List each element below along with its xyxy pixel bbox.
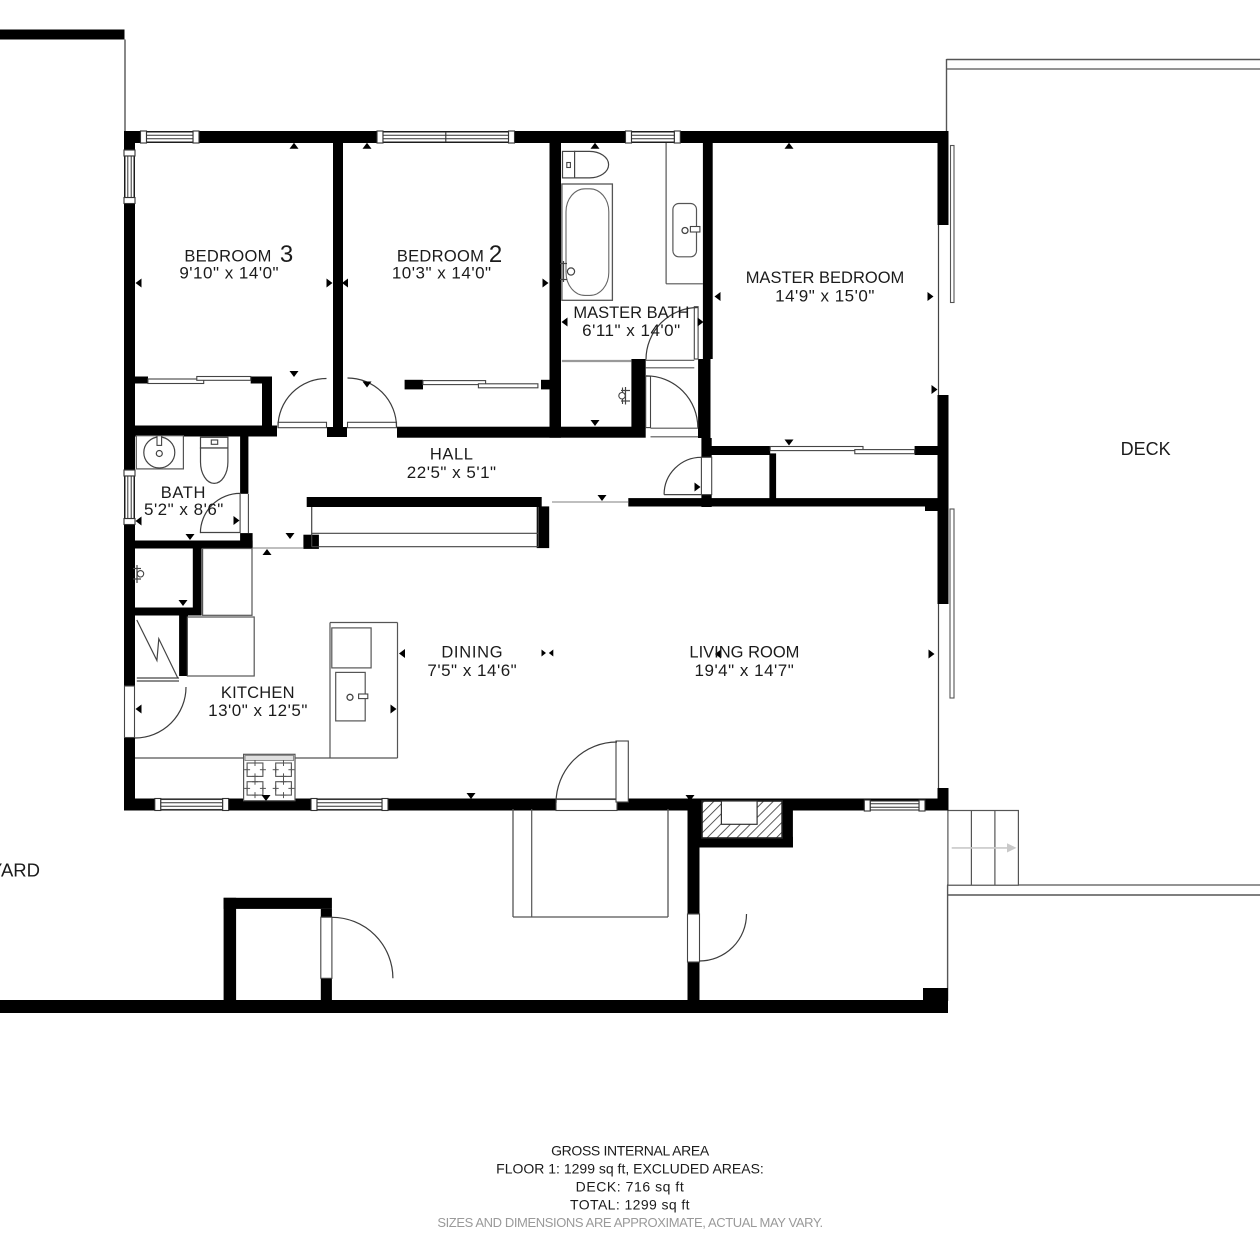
svg-text:DECK: DECK — [1121, 439, 1171, 459]
svg-text:SIZES AND DIMENSIONS ARE APPRO: SIZES AND DIMENSIONS ARE APPROXIMATE, AC… — [437, 1215, 822, 1230]
svg-text:22'5" x 5'1": 22'5" x 5'1" — [407, 463, 497, 482]
svg-text:10'3" x 14'0": 10'3" x 14'0" — [392, 263, 492, 282]
svg-text:KITCHEN: KITCHEN — [221, 684, 295, 702]
svg-text:6'11" x 14'0": 6'11" x 14'0" — [582, 321, 680, 340]
svg-text:13'0" x 12'5": 13'0" x 12'5" — [208, 701, 308, 720]
svg-text:HALL: HALL — [430, 445, 474, 463]
svg-text:TOTAL: 1299 sq ft: TOTAL: 1299 sq ft — [570, 1197, 690, 1213]
svg-text:5'2" x 8'6": 5'2" x 8'6" — [144, 500, 224, 519]
svg-text:DECK: 716 sq ft: DECK: 716 sq ft — [576, 1179, 685, 1195]
svg-text:YARD: YARD — [0, 859, 40, 880]
svg-text:GROSS INTERNAL AREA: GROSS INTERNAL AREA — [551, 1143, 710, 1159]
svg-text:LIVING ROOM: LIVING ROOM — [689, 643, 799, 661]
svg-text:7'5" x 14'6": 7'5" x 14'6" — [427, 661, 517, 680]
svg-text:MASTER BEDROOM: MASTER BEDROOM — [746, 269, 905, 287]
svg-text:9'10" x 14'0": 9'10" x 14'0" — [179, 263, 279, 282]
svg-text:19'4" x 14'7": 19'4" x 14'7" — [695, 661, 795, 680]
svg-text:DINING: DINING — [441, 643, 503, 661]
svg-text:MASTER BATH: MASTER BATH — [573, 304, 689, 322]
svg-text:14'9" x 15'0": 14'9" x 15'0" — [775, 286, 875, 305]
svg-text:FLOOR 1: 1299 sq ft, EXCLUDED: FLOOR 1: 1299 sq ft, EXCLUDED AREAS: — [496, 1160, 764, 1176]
svg-text:3: 3 — [280, 241, 293, 268]
